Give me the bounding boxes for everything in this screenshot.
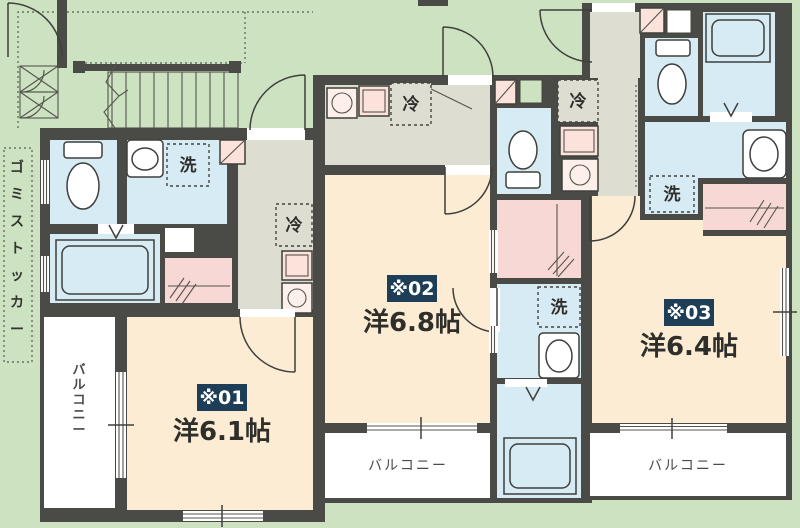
living-room-01: [127, 317, 313, 510]
stove-unit: [282, 283, 312, 313]
fridge-label-03: 冷: [570, 91, 587, 112]
unit-02-number: ※02: [390, 278, 435, 300]
fridge-label-01: 冷: [286, 215, 303, 236]
shoe-box-01: [220, 140, 245, 164]
washbasin-icon-03: [743, 130, 786, 178]
upper-wall-stub: [418, 0, 448, 6]
shoe-box-03: [640, 8, 664, 33]
toilet-icon: [64, 142, 102, 209]
stair-handrail: [84, 64, 230, 71]
washbasin-bowl: [132, 148, 158, 170]
door-opening-kitchen-01: [240, 309, 295, 317]
washroom-door-opening-02: [490, 288, 500, 332]
toilet-tank: [64, 142, 102, 158]
window-bath-01: [41, 256, 49, 292]
entrance-opening-01: [247, 128, 305, 140]
floor-plan: ゴミストッカー 洗 冷: [0, 0, 800, 528]
stove-icon-01: [282, 283, 312, 313]
washbasin-icon: [127, 140, 163, 177]
kitchen-sink-icon-02: [359, 86, 389, 116]
balcony-label-02: バルコニー: [368, 458, 448, 474]
washbasin-bowl: [546, 340, 572, 372]
window: [183, 511, 263, 521]
storage-box-03: [667, 10, 691, 33]
unit-01-size: 洋6.1帖: [173, 416, 271, 447]
bathtub-inner: [712, 20, 764, 56]
kitchen-sink-icon-03: [560, 126, 598, 156]
window-toilet-01: [41, 160, 49, 204]
washer-label-03: 洗: [664, 184, 681, 205]
balcony-label-01: バルコニー: [72, 363, 85, 438]
stove-icon-03: [562, 159, 598, 191]
closet-02: [497, 200, 581, 278]
hall-nook-01: [165, 228, 194, 252]
unit-02-size: 洋6.8帖: [363, 307, 461, 338]
window: [41, 160, 49, 204]
window: [620, 424, 727, 433]
kitchen-sink-icon-01: [282, 251, 312, 280]
entrance-opening-02: [448, 75, 492, 85]
stove-icon-02: [327, 88, 357, 118]
kitchen-hall-03: [598, 78, 638, 196]
toilet-tank: [506, 172, 540, 188]
toilet-icon-02: [506, 131, 540, 188]
bathtub-inner: [62, 246, 148, 294]
window: [489, 326, 498, 353]
window: [367, 423, 477, 433]
washer-label-01: 洗: [180, 155, 197, 176]
washer-label-02: 洗: [551, 297, 568, 318]
washbasin-bowl: [750, 137, 778, 171]
bath-door-opening-02: [505, 379, 547, 387]
stair-wall-stub: [57, 0, 67, 68]
stove-unit: [562, 159, 598, 191]
unit-01: 洗 冷: [41, 75, 313, 527]
unit-03-number: ※03: [667, 302, 712, 324]
window: [489, 230, 498, 273]
toilet-bowl: [509, 131, 537, 169]
bathtub-icon-01: [56, 240, 154, 300]
floor-plan-svg: ゴミストッカー 洗 冷: [0, 0, 800, 528]
handrail-post: [229, 61, 241, 73]
door-opening-kitchen-02: [445, 165, 490, 175]
bathtub-inner: [510, 444, 570, 488]
toilet-bowl: [67, 163, 99, 209]
balcony-label-03: バルコニー: [648, 458, 728, 474]
handrail-post: [73, 61, 85, 73]
toilet-tank: [656, 40, 690, 56]
unit-03-size: 洋6.4帖: [640, 331, 738, 362]
bath-door-opening-01: [98, 224, 134, 234]
unit-01-number: ※01: [200, 387, 245, 409]
bathtub-icon-02: [504, 438, 576, 494]
fridge-label-02: 冷: [403, 94, 420, 115]
bathtub-icon-03: [706, 14, 770, 62]
window: [41, 256, 49, 292]
entrance-opening-03: [592, 3, 635, 12]
washbasin-icon-02: [539, 333, 579, 378]
entrance-hall-03: [590, 12, 640, 78]
closet-03: [703, 184, 786, 230]
porch-void: [520, 80, 542, 103]
shoe-box-02: [495, 80, 516, 104]
toilet-bowl: [658, 64, 686, 104]
closet-01: [165, 258, 232, 303]
